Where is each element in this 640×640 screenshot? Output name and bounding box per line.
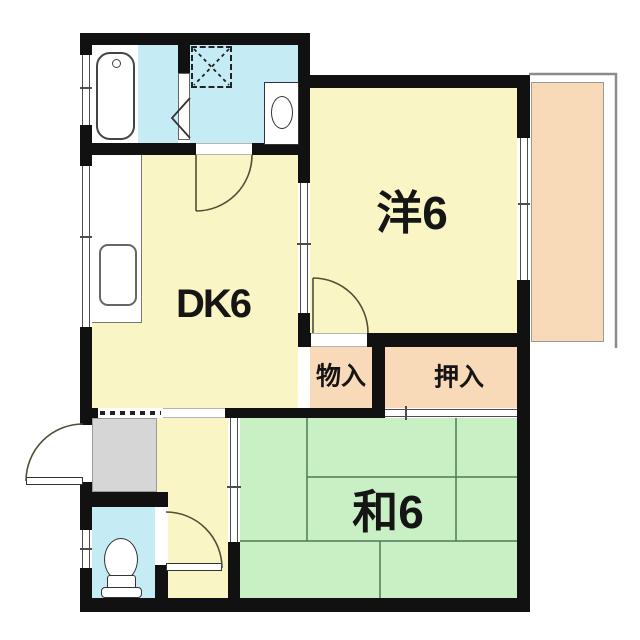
wall-dk-bottom-1 bbox=[80, 408, 98, 418]
toilet-base bbox=[101, 587, 142, 598]
wall-washroom-bottom-1 bbox=[80, 143, 196, 155]
entrance-opening bbox=[80, 425, 92, 482]
wall-dk-bottom-2 bbox=[225, 408, 385, 418]
entrance-genkan-floor bbox=[92, 418, 157, 492]
wall-dk-western-1 bbox=[298, 155, 310, 183]
bathroom-floor bbox=[138, 45, 178, 143]
bath-window-tick bbox=[80, 87, 92, 89]
balcony-floor bbox=[531, 82, 604, 342]
wall-western-bottom-1 bbox=[298, 333, 311, 347]
wall-left-4 bbox=[80, 482, 92, 530]
wall-washroom-right bbox=[298, 33, 310, 155]
dk-room-label: DK6 bbox=[176, 284, 250, 324]
washroom-dk-opening bbox=[196, 143, 252, 155]
wall-bottom bbox=[80, 598, 530, 612]
folding-door-panel bbox=[178, 73, 190, 140]
entrance-door-swing-arc bbox=[26, 424, 83, 481]
washbasin-bowl-icon bbox=[271, 96, 293, 129]
storage-door-opening bbox=[311, 333, 367, 347]
bath-window bbox=[82, 55, 90, 125]
genkan-step-dashes bbox=[100, 411, 161, 415]
wall-left-1 bbox=[80, 33, 92, 55]
japanese-room-label: 和6 bbox=[352, 489, 424, 535]
kitchen-window-tick bbox=[80, 236, 92, 238]
dk-hallway-opening bbox=[163, 408, 225, 418]
dk-western-sliding-tick bbox=[297, 243, 311, 245]
toilet-window-tick bbox=[80, 548, 92, 550]
wall-bath-divider bbox=[178, 45, 190, 73]
wall-hall-tatami bbox=[228, 542, 240, 598]
hall-tatami-sliding-tick bbox=[227, 486, 241, 488]
wall-western-bottom-2 bbox=[367, 333, 530, 347]
closet-label: 押入 bbox=[434, 366, 484, 391]
western-room-window bbox=[520, 138, 528, 280]
entrance-door-leaf bbox=[26, 477, 83, 485]
wall-top bbox=[80, 33, 310, 45]
western-room-window-tick bbox=[518, 203, 530, 205]
washing-machine-pan bbox=[191, 46, 232, 88]
western-room-label: 洋6 bbox=[376, 190, 448, 236]
dk-western-sliding-door bbox=[300, 183, 308, 313]
kitchen-sink bbox=[99, 244, 137, 306]
floor-plan: DK6 洋6 和6 物入 押入 bbox=[0, 0, 640, 640]
wall-dk-bottom-3 bbox=[517, 408, 530, 418]
wall-storage-divider bbox=[372, 347, 385, 408]
hall-tatami-sliding-door bbox=[230, 418, 238, 542]
wall-genkan-bottom bbox=[92, 492, 168, 507]
wall-right-2 bbox=[517, 280, 530, 612]
kitchen-window bbox=[82, 166, 90, 327]
toilet-door-leaf bbox=[166, 563, 222, 571]
bathtub-drain-icon bbox=[112, 59, 121, 68]
toilet-door-opening bbox=[155, 507, 168, 565]
wall-western-top bbox=[298, 75, 530, 88]
storage-label: 物入 bbox=[316, 365, 366, 390]
closet-fusuma-tick bbox=[405, 406, 407, 420]
